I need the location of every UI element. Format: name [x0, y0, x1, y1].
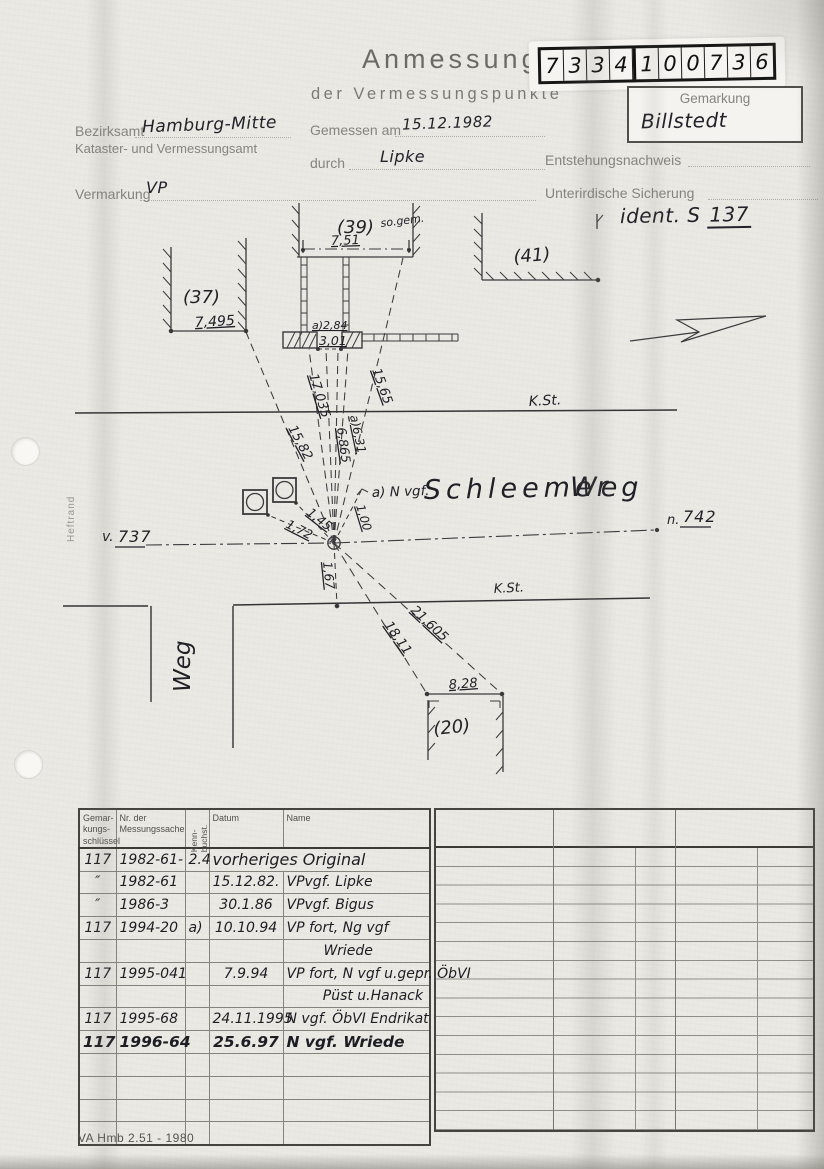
durch-line — [349, 168, 545, 170]
table-cell — [209, 985, 283, 1008]
table-cell: Püst u.Hanack — [283, 985, 430, 1008]
table-cell — [116, 939, 185, 962]
label-r100: 1,00 — [353, 503, 374, 533]
street-lines — [63, 410, 677, 748]
table-cell — [283, 1122, 430, 1145]
label-n-num: 742 — [683, 507, 717, 526]
label-n-prefix: n. — [667, 513, 679, 528]
blank-record-grid — [434, 808, 815, 1132]
table-cell: 25.6.97 — [209, 1031, 283, 1054]
table-cell — [185, 1099, 209, 1122]
label-r17035: 17,035 — [305, 372, 333, 420]
table-cell — [79, 1076, 116, 1099]
label-kst-lower: K.St. — [493, 580, 524, 597]
gemarkung-value: Billstedt — [641, 107, 801, 134]
sicherung-label: Unterirdische Sicherung — [545, 185, 694, 201]
label-v-prefix: v. — [102, 529, 114, 545]
label-wall-b: 3,01 — [319, 333, 347, 348]
ident-number: 137 — [707, 202, 751, 229]
table-row: ″1986-330.1.86VPvgf. Bigus — [79, 894, 430, 917]
table-cell: vorheriges Original — [209, 848, 430, 871]
table-cell: ″ — [79, 871, 116, 894]
table-cell — [283, 1076, 430, 1099]
scanned-survey-document: Anmessung der Vermessungspunkte 73341007… — [0, 0, 824, 1169]
point-number-digit: 3 — [728, 46, 752, 77]
durch-value: Lipke — [380, 147, 425, 166]
table-row: 1171995-0417.9.94VP fort, N vgf u.gepr. … — [79, 962, 430, 985]
table-cell: 24.11.1995 — [209, 1008, 283, 1031]
label-r1565: 15,65 — [368, 366, 395, 406]
table-row: ″1982-6115.12.82.VPvgf. Lipke — [79, 871, 430, 894]
table-cell: 117 — [79, 848, 116, 871]
table-cell: 7.9.94 — [209, 962, 283, 985]
table-cell: N vgf. Wriede — [283, 1031, 430, 1054]
label-r1811: 18,11 — [381, 619, 415, 658]
number-underlines — [115, 527, 711, 547]
label-v-num: 737 — [118, 527, 152, 546]
table-cell — [209, 1122, 283, 1145]
label-street-2: Weg — [570, 472, 642, 503]
table-cell — [283, 1053, 430, 1076]
table-cell — [79, 939, 116, 962]
blank-grid-header — [436, 810, 813, 848]
point-number-digit: 3 — [564, 49, 588, 80]
col-header-gemarkungsschluessel: Gemar- kungs- schlüssel — [79, 809, 116, 848]
ident-label: ident. S — [620, 203, 701, 228]
durch-label: durch — [310, 155, 345, 171]
fence-strips — [301, 257, 458, 341]
grid-subdivider — [635, 848, 636, 1130]
table-cell — [209, 1099, 283, 1122]
table-cell — [185, 1008, 209, 1031]
gemessen-label: Gemessen am — [310, 122, 401, 138]
label-kst-upper: K.St. — [528, 392, 561, 410]
col-header-name: Name — [283, 809, 430, 848]
bezirksamt-label: Bezirksamt — [75, 123, 144, 139]
label-nvgf: a) N vgf. — [372, 483, 430, 501]
table-cell: 1995-041 — [116, 962, 185, 985]
table-cell — [185, 1053, 209, 1076]
entstehung-line — [688, 165, 810, 167]
building-37 — [163, 238, 248, 333]
table-cell: VP fort, Ng vgf — [283, 917, 430, 940]
table-cell: VPvgf. Lipke — [283, 871, 430, 894]
building-41 — [474, 213, 603, 282]
table-row: 1171994-20a)10.10.94VP fort, Ng vgf — [79, 917, 430, 940]
measurement-rays — [246, 258, 502, 694]
grid-subdivider — [757, 848, 758, 1130]
table-cell — [185, 939, 209, 962]
label-b41: (41) — [513, 244, 552, 268]
col-header-messungssache: Nr. der Messungssache — [116, 809, 185, 848]
table-row: 1171982-61-2.4vorheriges Original — [79, 848, 430, 871]
table-cell: 1982-61- — [116, 848, 185, 871]
table-cell: 10.10.94 — [209, 917, 283, 940]
table-cell — [283, 1099, 430, 1122]
label-b37-dim: 7,495 — [194, 313, 235, 331]
table-cell: 117 — [79, 1008, 116, 1031]
label-ra631: a)6,31 — [347, 414, 369, 455]
page-title: Anmessung — [362, 44, 541, 75]
amt-line2: Kataster- und Vermessungsamt — [75, 141, 257, 156]
heftrand-label: Heftrand — [66, 496, 77, 542]
hole-punch-bottom — [15, 751, 42, 778]
col-header-datum: Datum — [209, 809, 283, 848]
point-number-digit: 3 — [587, 49, 611, 80]
point-number-digit: 7 — [541, 50, 565, 81]
label-road-weg: Weg — [170, 641, 196, 693]
label-b20: (20) — [432, 715, 471, 740]
table-cell: 15.12.82. — [209, 871, 283, 894]
grid-divider — [675, 810, 676, 1130]
table-cell: 117 — [79, 962, 116, 985]
table-cell: ″ — [79, 894, 116, 917]
label-r145: 1,45 — [304, 505, 335, 534]
table-cell: 1986-3 — [116, 894, 185, 917]
table-cell — [185, 985, 209, 1008]
label-b37: (37) — [183, 287, 220, 308]
table-cell: a) — [185, 917, 209, 940]
point-number-digit: 0 — [682, 47, 706, 78]
table-cell: VP fort, N vgf u.gepr. ÖbVI — [283, 962, 430, 985]
table-cell — [79, 985, 116, 1008]
sketch-labels: (37) 7,495 (39) so.gem. 7,51 (41) a)2,84… — [102, 212, 717, 740]
point-number-sticker: 7334100736 — [529, 37, 786, 92]
gemarkung-label: Gemarkung — [629, 91, 801, 106]
table-cell: Wriede — [283, 939, 430, 962]
col-header-kennbuchst: Kenn- buchst. — [185, 809, 209, 848]
table-cell — [209, 939, 283, 962]
table-cell — [185, 962, 209, 985]
point-number-digit: 7 — [705, 47, 729, 78]
measurement-record-table: Gemar- kungs- schlüssel Nr. der Messungs… — [78, 808, 431, 1146]
point-number-digit: 6 — [751, 46, 774, 77]
table-cell — [209, 1076, 283, 1099]
label-r167: 1,67 — [320, 561, 338, 590]
gemarkung-box: Gemarkung Billstedt — [627, 86, 803, 143]
ident-annotation: ident. S 137 — [620, 202, 751, 228]
label-r172: 1,72 — [284, 516, 316, 542]
hatched-wall — [283, 332, 362, 350]
vermarkung-line — [140, 199, 536, 201]
manhole-symbols — [243, 478, 298, 517]
table-row: 1171995-6824.11.1995N vgf. ÖbVI Endrikat — [79, 1008, 430, 1031]
building-20 — [425, 692, 503, 774]
table-cell: 1994-20 — [116, 917, 185, 940]
point-number-digit: 0 — [659, 48, 683, 79]
point-number-digits: 7334100736 — [538, 43, 777, 85]
table-cell: VPvgf. Bigus — [283, 894, 430, 917]
table-row: Püst u.Hanack — [79, 985, 430, 1008]
table-cell: 30.1.86 — [209, 894, 283, 917]
table-cell — [185, 894, 209, 917]
table-cell: 117 — [79, 917, 116, 940]
table-cell — [185, 871, 209, 894]
table-cell — [116, 1053, 185, 1076]
table-cell: 1995-68 — [116, 1008, 185, 1031]
table-cell — [116, 1076, 185, 1099]
table-row — [79, 1099, 430, 1122]
point-number-digit: 1 — [633, 48, 660, 79]
label-r6865: 6,865 — [334, 426, 354, 464]
table-cell — [209, 1053, 283, 1076]
table-cell — [185, 1076, 209, 1099]
vermarkung-value: VP — [146, 178, 168, 197]
label-street-1: Schleemer — [424, 472, 613, 506]
label-b39-dim: 7,51 — [331, 233, 360, 249]
form-code: VA Hmb 2.51 - 1980 — [78, 1131, 194, 1145]
label-r21605: 21,605 — [407, 603, 451, 645]
label-wall-a: a)2,84 — [312, 319, 348, 332]
table-cell — [116, 1099, 185, 1122]
table-row: 1171996-6425.6.97N vgf. Wriede — [79, 1031, 430, 1054]
table-cell: N vgf. ÖbVI Endrikat — [283, 1008, 430, 1031]
gemessen-value: 15.12.1982 — [402, 112, 493, 133]
label-b20-dim: 8,28 — [448, 676, 478, 693]
table-cell: 117 — [79, 1031, 116, 1054]
table-row — [79, 1053, 430, 1076]
table-cell: 1996-64 — [116, 1031, 185, 1054]
building-39 — [292, 203, 420, 257]
label-r1582: 15,82 — [284, 423, 315, 463]
table-cell — [79, 1053, 116, 1076]
table-cell: 1982-61 — [116, 871, 185, 894]
street-axis — [146, 528, 659, 545]
survey-point-symbol — [328, 537, 340, 549]
table-cell — [116, 985, 185, 1008]
gemessen-line — [395, 135, 545, 137]
label-b39: (39) — [337, 217, 374, 238]
grid-divider — [553, 810, 554, 1130]
hole-punch-top — [12, 438, 39, 465]
entstehung-label: Entstehungsnachweis — [545, 152, 681, 168]
table-row: Wriede — [79, 939, 430, 962]
page-subtitle: der Vermessungspunkte — [311, 85, 562, 104]
table-row — [79, 1076, 430, 1099]
label-b39-sogem: so.gem. — [380, 212, 425, 230]
point-number-digit: 4 — [610, 48, 634, 79]
bezirksamt-line — [135, 136, 291, 138]
sicherung-line — [708, 198, 818, 200]
north-arrow-icon — [630, 316, 766, 342]
table-cell — [79, 1099, 116, 1122]
bezirksamt-value: Hamburg-Mitte — [142, 113, 278, 138]
